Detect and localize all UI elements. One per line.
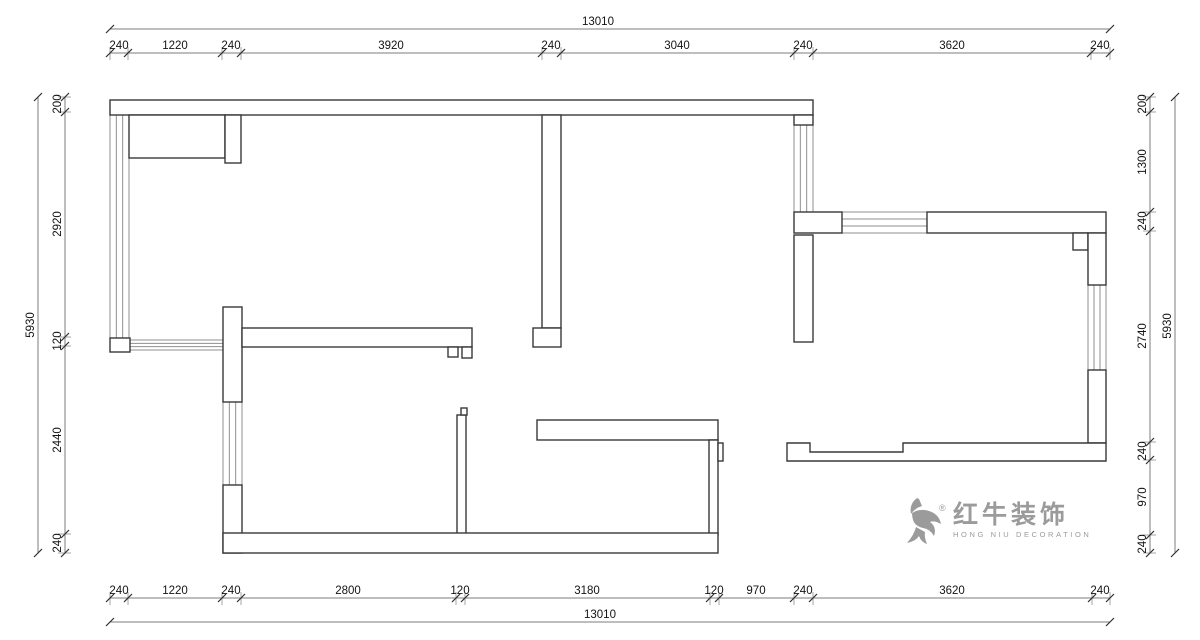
dim-label: 240 bbox=[1090, 585, 1109, 597]
wall-segment bbox=[709, 440, 718, 535]
wall-segment bbox=[129, 115, 225, 158]
dim-label: 120 bbox=[450, 585, 469, 597]
wall-segment bbox=[787, 443, 1106, 461]
wall-segment bbox=[457, 415, 466, 537]
wall-segment bbox=[533, 328, 561, 347]
dim-label: 2800 bbox=[335, 585, 361, 597]
window-symbol bbox=[1088, 285, 1106, 370]
window-symbol bbox=[223, 402, 242, 485]
logo-text: 红牛装饰 HONG NIU DECORATION bbox=[953, 496, 1091, 539]
wall-segment bbox=[537, 420, 718, 440]
wall-segment bbox=[223, 307, 242, 402]
wall-segment bbox=[448, 347, 458, 357]
dim-label: 1300 bbox=[1137, 149, 1149, 175]
dim-label: 970 bbox=[1137, 487, 1149, 506]
logo-hongniu: ® 红牛装饰 HONG NIU DECORATION bbox=[903, 496, 1073, 548]
dim-label: 240 bbox=[793, 40, 812, 52]
dim-label: 240 bbox=[1090, 40, 1109, 52]
wall-segment bbox=[462, 347, 472, 358]
dim-label: 240 bbox=[221, 40, 240, 52]
dim-label: 2740 bbox=[1137, 323, 1149, 349]
dim-label: 3180 bbox=[574, 585, 600, 597]
window-symbol bbox=[129, 340, 223, 350]
wall-segment bbox=[542, 115, 561, 328]
dim-label: 240 bbox=[1137, 441, 1149, 460]
dim-label: 120 bbox=[704, 585, 723, 597]
wall-segment bbox=[927, 212, 1106, 233]
dim-label: 3620 bbox=[939, 40, 965, 52]
dim-label: 1220 bbox=[162, 585, 188, 597]
window-symbol bbox=[842, 212, 927, 233]
registered-mark: ® bbox=[939, 504, 946, 513]
wall-segment bbox=[223, 533, 718, 553]
dim-label: 240 bbox=[541, 40, 560, 52]
dim-label: 1220 bbox=[162, 40, 188, 52]
logo-name-cn: 红牛装饰 bbox=[953, 502, 1091, 528]
wall-segment bbox=[794, 212, 842, 233]
dim-total-label: 5930 bbox=[1162, 313, 1174, 339]
dim-total-label: 13010 bbox=[582, 16, 614, 28]
window-symbol bbox=[794, 125, 813, 212]
dim-label: 200 bbox=[52, 94, 64, 113]
dim-label: 3040 bbox=[664, 40, 690, 52]
wall-segment bbox=[110, 100, 813, 115]
dimension-left: 200292012024402405930 bbox=[25, 93, 71, 557]
dim-label: 120 bbox=[52, 331, 64, 350]
dim-label: 240 bbox=[109, 40, 128, 52]
dim-label: 240 bbox=[109, 585, 128, 597]
dimension-bottom: 2401220240280012031801209702403620240130… bbox=[106, 585, 1114, 626]
wall-segment bbox=[242, 328, 472, 347]
dim-label: 200 bbox=[1137, 94, 1149, 113]
window-symbol bbox=[110, 115, 129, 338]
dimension-right: 200130024027402409702405930 bbox=[1137, 93, 1179, 557]
wall-segment bbox=[225, 115, 241, 163]
wall-segment bbox=[1088, 233, 1106, 285]
wall-segment bbox=[794, 235, 813, 342]
wall-segment bbox=[110, 338, 130, 352]
dim-label: 970 bbox=[746, 585, 765, 597]
dim-label: 3920 bbox=[378, 40, 404, 52]
wall-segment bbox=[794, 115, 813, 125]
wall-segment bbox=[1088, 370, 1106, 443]
dim-label: 3620 bbox=[939, 585, 965, 597]
wall-segment bbox=[718, 443, 723, 461]
dim-label: 240 bbox=[221, 585, 240, 597]
dim-label: 240 bbox=[793, 585, 812, 597]
dim-label: 240 bbox=[1137, 534, 1149, 553]
dim-total-label: 13010 bbox=[584, 609, 616, 621]
dim-label: 240 bbox=[52, 533, 64, 552]
dim-label: 2920 bbox=[52, 211, 64, 237]
dim-label: 240 bbox=[1137, 211, 1149, 230]
wall-segment bbox=[1073, 233, 1088, 250]
wall-segment bbox=[461, 408, 467, 415]
walls bbox=[110, 100, 1106, 553]
logo-name-en: HONG NIU DECORATION bbox=[953, 530, 1091, 539]
floorplan-page: 2401220240392024030402403620240130102401… bbox=[0, 0, 1200, 640]
dim-label: 2440 bbox=[52, 427, 64, 453]
dim-total-label: 5930 bbox=[25, 312, 37, 338]
dimension-top: 240122024039202403040240362024013010 bbox=[106, 16, 1114, 60]
